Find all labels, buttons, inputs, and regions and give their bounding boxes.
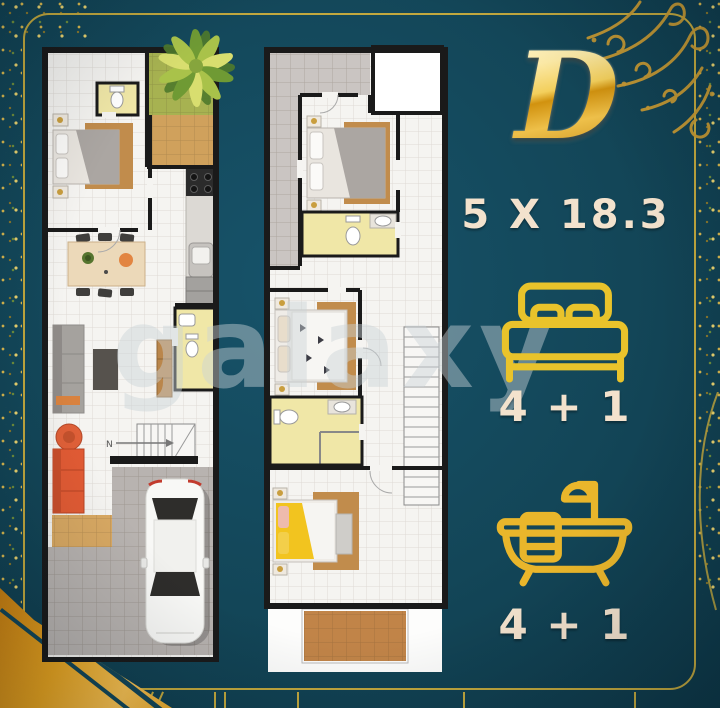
bathroom-count: 4 + 1 <box>492 600 638 649</box>
floor-plan-second-floor <box>262 40 452 680</box>
bed-icon <box>494 280 636 384</box>
bathtub-icon <box>492 470 637 590</box>
balcony <box>268 606 442 672</box>
bathroom-1-fixtures <box>110 86 124 108</box>
gold-line <box>224 692 226 708</box>
storage-cabinet <box>157 340 172 397</box>
living-room-sofa <box>53 325 84 413</box>
gold-arc-ornament <box>688 392 720 612</box>
unit-dimensions: 5 X 18.3 <box>450 192 682 238</box>
stairs-second-floor <box>404 327 439 505</box>
gold-line <box>214 692 216 708</box>
bed-second-floor-back <box>273 488 359 575</box>
floor-plan-first-floor: N <box>40 28 235 662</box>
stairs-direction-label: N <box>106 440 113 450</box>
stove <box>186 169 216 196</box>
bedroom-count: 4 + 1 <box>492 382 638 431</box>
unit-type-letter: D <box>498 30 636 164</box>
flyer-canvas: N <box>0 0 720 708</box>
tv-console <box>93 349 118 390</box>
bed-second-floor-middle <box>275 298 356 395</box>
bed-second-floor-front <box>307 116 390 211</box>
orange-lounge-set <box>53 424 84 513</box>
gold-sparkle-strip-left <box>0 0 22 640</box>
gold-line <box>463 692 465 708</box>
car <box>141 479 210 646</box>
kitchen <box>186 169 216 305</box>
gold-line <box>634 692 636 708</box>
gold-line <box>297 692 299 708</box>
void-white-block <box>373 47 442 113</box>
